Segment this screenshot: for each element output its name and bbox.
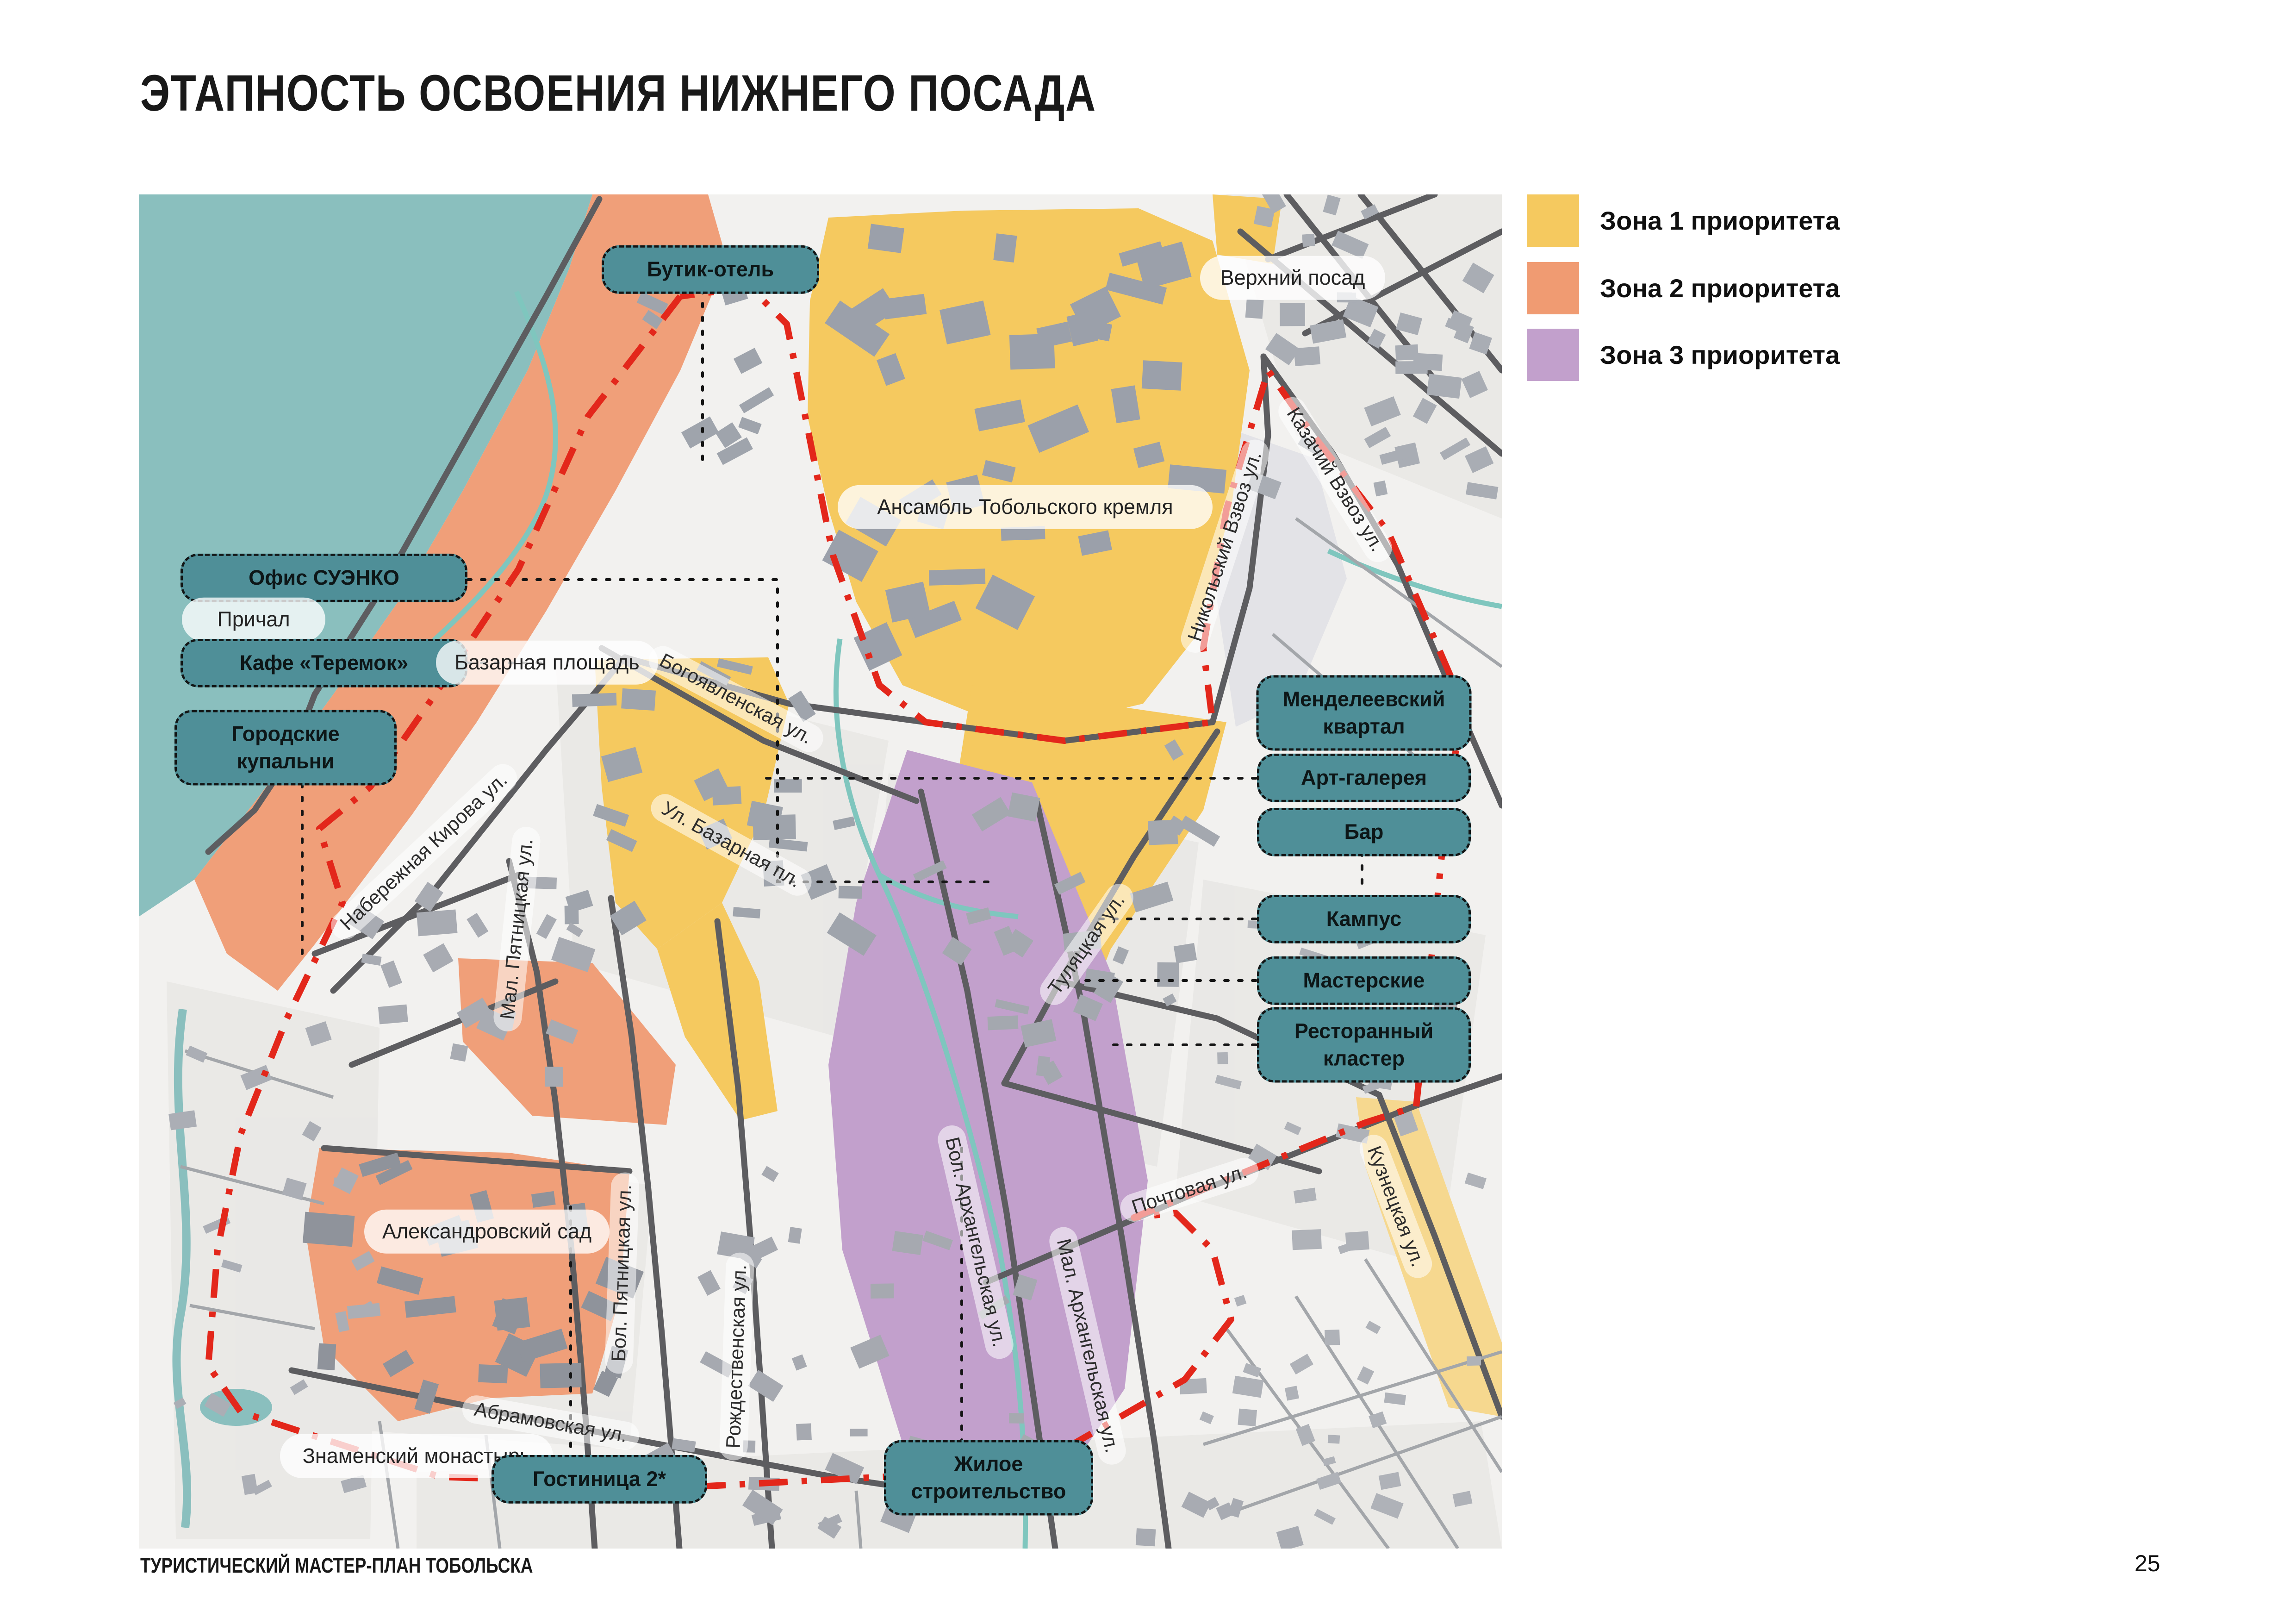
map-label-ofis-suenko: Офис СУЭНКО (180, 554, 467, 602)
legend-label-zone2: Зона 2 приоритета (1600, 273, 1840, 303)
street-label-rozhdestvenskaya: Рождественская ул. (719, 1252, 755, 1461)
map-label-butik-otel: Бутик-отель (602, 245, 819, 294)
city-map: Бутик-отельВерхний посадАнсамбль Тобольс… (139, 194, 1502, 1549)
street-label-bol-arkhangelskaya: Бол. Архангельская ул. (935, 1123, 1016, 1362)
legend-item-zone3: Зона 3 приоритета (1527, 329, 1840, 381)
page-title: ЭТАПНОСТЬ ОСВОЕНИЯ НИЖНЕГО ПОСАДА (140, 64, 1306, 123)
street-label-nikolsky-vzvoz: Никольский Взвоз ул. (1177, 436, 1273, 656)
map-label-mendeleevsky-kvartal: Менделеевский квартал (1257, 675, 1472, 751)
map-label-art-galereya: Арт-галерея (1257, 754, 1471, 802)
map-label-kampus: Кампус (1257, 895, 1471, 943)
street-label-tulyatskaya: Туляцкая ул. (1034, 878, 1139, 1011)
street-label-pochtovaya: Почтовая ул. (1117, 1154, 1262, 1225)
legend-swatch-zone3 (1527, 329, 1579, 381)
street-label-bol-pyatnitskaya: Бол. Пятницкая ул. (604, 1172, 640, 1374)
map-label-masterskie: Мастерские (1257, 956, 1471, 1005)
master-plan-page: { "page": { "title": "ЭТАПНОСТЬ ОСВОЕНИЯ… (0, 0, 2296, 1624)
street-label-mal-arkhangelskaya: Мал. Архангельская ул. (1046, 1224, 1128, 1468)
street-label-kuznetskaya: Кузнецкая ул. (1356, 1131, 1436, 1282)
map-label-prichal: Причал (182, 598, 325, 642)
street-label-mal-pyatnitskaya: Мал. Пятницкая ул. (492, 825, 541, 1033)
legend-swatch-zone1 (1527, 194, 1579, 247)
map-label-gostinitsa-2: Гостиница 2* (492, 1455, 707, 1504)
map-label-gorodskie-kupalni: Городские купальни (174, 710, 397, 786)
street-label-naberezhnaya-kirova: Набережная Кирова ул. (325, 758, 523, 945)
map-label-aleksandrovsky-sad: Александровский сад (364, 1210, 610, 1254)
legend-swatch-zone2 (1527, 262, 1579, 314)
legend-label-zone1: Зона 1 приоритета (1600, 206, 1840, 236)
map-label-ansambl-tobolskogo-kremlya: Ансамбль Тобольского кремля (838, 485, 1213, 529)
legend-item-zone2: Зона 2 приоритета (1527, 262, 1840, 314)
page-number: 25 (2134, 1550, 2160, 1577)
legend-item-zone1: Зона 1 приоритета (1527, 194, 1840, 247)
footer-text: ТУРИСТИЧЕСКИЙ МАСТЕР-ПЛАН ТОБОЛЬСКА (140, 1554, 619, 1578)
map-label-bazarnaya-ploshchad: Базарная площадь (436, 641, 658, 685)
map-label-kafe-teremok: Кафе «Теремок» (180, 639, 467, 687)
map-label-restorannyi-klaster: Ресторанный кластер (1257, 1007, 1471, 1083)
street-label-bogoyavlenskaya: Богоявленская ул. (644, 641, 828, 757)
map-labels-layer: Бутик-отельВерхний посадАнсамбль Тобольс… (139, 194, 1502, 1549)
map-label-verkhny-posad: Верхний посад (1200, 256, 1385, 300)
street-label-kazachy-vzvoz: Казачий Взвоз ул. (1273, 392, 1397, 567)
street-label-ul-bazarnaya: Ул. Базарная пл. (646, 789, 817, 900)
map-label-bar: Бар (1257, 808, 1471, 856)
map-label-zhiloe-stroitelstvo: Жилое строительство (884, 1440, 1093, 1516)
legend-label-zone3: Зона 3 приоритета (1600, 340, 1840, 370)
